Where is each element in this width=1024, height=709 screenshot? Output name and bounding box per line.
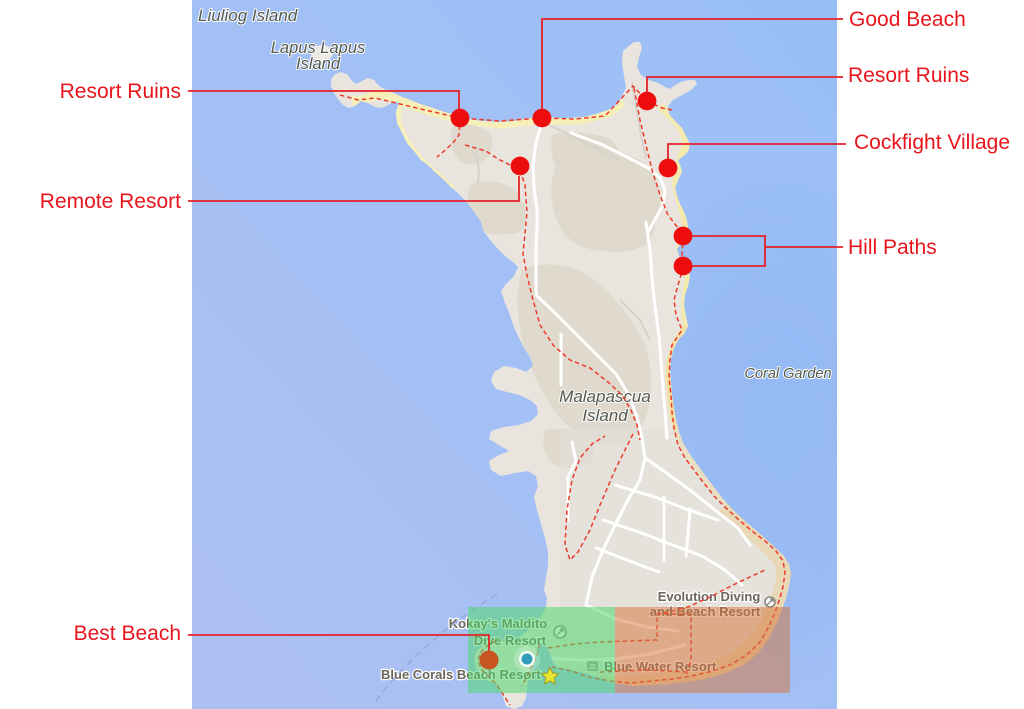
svg-text:Island: Island <box>296 55 341 73</box>
svg-text:Liuliog Island: Liuliog Island <box>198 6 298 25</box>
svg-text:Malapascua: Malapascua <box>559 387 651 406</box>
svg-text:Island: Island <box>582 406 628 425</box>
svg-text:Coral Garden: Coral Garden <box>744 366 831 382</box>
svg-text:Evolution Diving: Evolution Diving <box>658 589 761 604</box>
